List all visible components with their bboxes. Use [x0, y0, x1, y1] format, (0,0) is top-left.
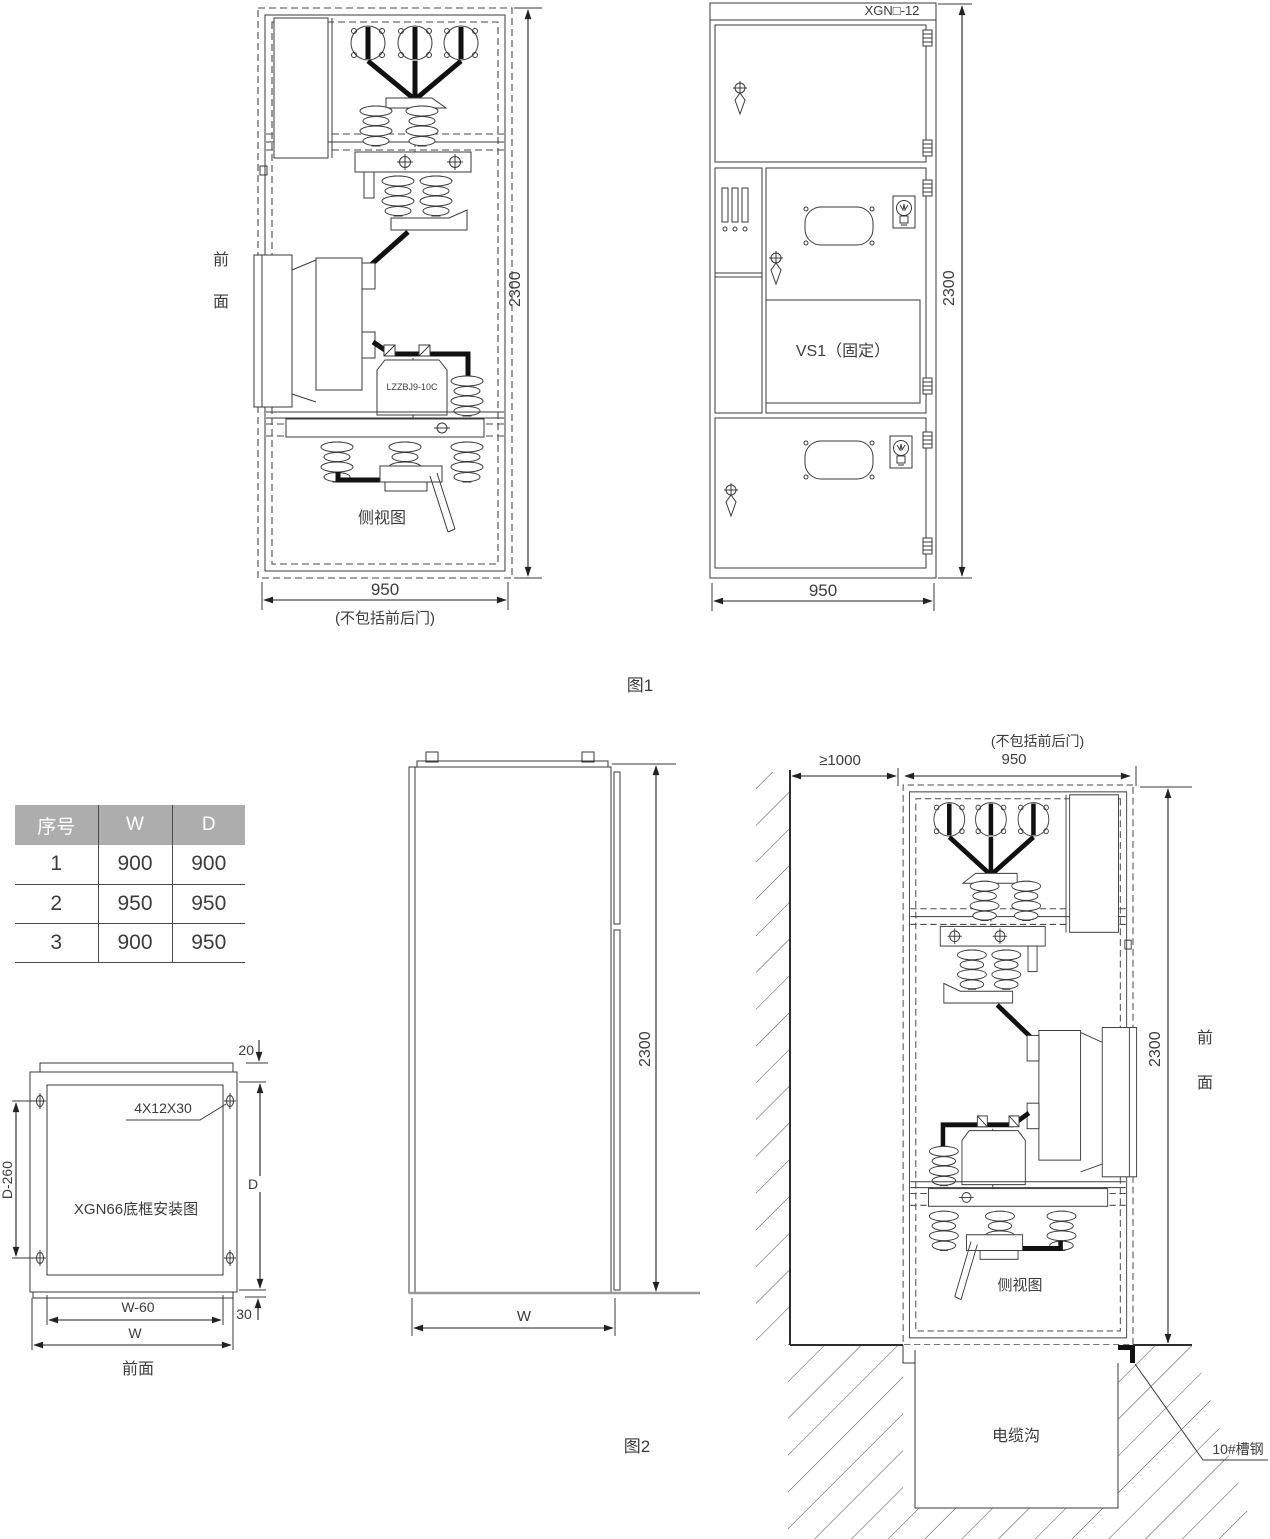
size-table: 序号 W D 1 900 900 2 950 950 3 900 950	[15, 805, 245, 963]
fig2-installation-drawing	[756, 766, 1268, 1539]
install-height-dim: 2300	[1147, 1027, 1165, 1071]
vs1-breaker-label: VS1（固定）	[766, 343, 920, 361]
sideview-height-dim: 2300	[507, 267, 525, 311]
sideview-view-label: 侧视图	[342, 510, 422, 528]
cable-trench-label: 电缆沟	[976, 1428, 1056, 1446]
frame-inner-width-dim: W-60	[108, 1299, 168, 1315]
wall-hatching	[756, 772, 790, 1345]
install-view-label: 侧视图	[980, 1277, 1060, 1294]
cabinet-height-dim: 2300	[637, 1027, 655, 1071]
drawing-linework	[0, 0, 1270, 1539]
hinge-icon	[923, 378, 932, 394]
frontview-height-dim: 2300	[941, 266, 959, 310]
hinge-icon	[923, 180, 932, 196]
ground-hatching	[788, 1345, 915, 1539]
frame-bolt-spec: 4X12X30	[123, 1100, 203, 1116]
indicator-lamp-icon	[890, 436, 912, 468]
hinge-icon	[923, 140, 932, 156]
indicator-lamp-icon	[893, 196, 915, 228]
table-row: 1 900 900	[15, 845, 245, 884]
frame-right-dim: D	[244, 1176, 262, 1192]
table-header-row: 序号 W D	[15, 805, 245, 845]
hinge-icon	[923, 538, 932, 554]
install-width-dim: 950	[984, 751, 1044, 768]
frame-bottom-right-dim: 30	[233, 1306, 255, 1322]
sideview-width-dim: 950	[355, 580, 415, 600]
install-width-note: (不包括前后门)	[955, 733, 1120, 749]
observation-window-icon	[804, 441, 874, 479]
frame-title: XGN66底框安装图	[56, 1201, 216, 1218]
table-row: 2 950 950	[15, 884, 245, 923]
frame-width-dim: W	[120, 1325, 150, 1341]
hinge-icon	[923, 432, 932, 448]
sideview-front-label-bottom: 面	[206, 294, 236, 312]
anchor-bolt-icon	[224, 1093, 236, 1109]
frame-top-dim: 20	[230, 1042, 254, 1058]
switchgear-drawing-sheet: 前 面 2300 950 (不包括前后门) 侧视图 LZZBJ9-10C XGN…	[0, 0, 1270, 1539]
frame-front-label: 前面	[103, 1361, 173, 1379]
sideview-front-label-top: 前	[206, 252, 236, 270]
table-row: 3 900 950	[15, 923, 245, 962]
install-front-label-bottom: 面	[1190, 1075, 1220, 1093]
observation-window-icon	[804, 207, 874, 245]
frame-left-dim: D-260	[0, 1155, 15, 1205]
install-front-label-top: 前	[1190, 1030, 1220, 1048]
col-header-d: D	[172, 805, 245, 845]
hinge-icon	[923, 30, 932, 46]
figure1-caption: 图1	[600, 676, 680, 696]
fig1-front-view-drawing	[710, 3, 972, 611]
wall-clearance-dim: ≥1000	[800, 752, 880, 769]
ground-hatching	[915, 1508, 1118, 1539]
cabinet-model-label: XGN□-12	[852, 4, 932, 19]
anchor-bolt-icon	[224, 1250, 236, 1266]
ct-model-label: LZZBJ9-10C	[378, 382, 446, 392]
frontview-width-dim: 950	[793, 581, 853, 601]
fig2-cabinet-drawing	[409, 752, 700, 1336]
channel-steel-label: 10#槽钢	[1206, 1441, 1270, 1457]
col-header-w: W	[98, 805, 172, 845]
col-header-index: 序号	[15, 805, 98, 845]
cabinet-width-dim: W	[509, 1308, 539, 1325]
figure2-caption: 图2	[597, 1437, 677, 1457]
channel-steel-icon	[1118, 1345, 1135, 1363]
sideview-width-note: (不包括前后门)	[300, 610, 470, 627]
